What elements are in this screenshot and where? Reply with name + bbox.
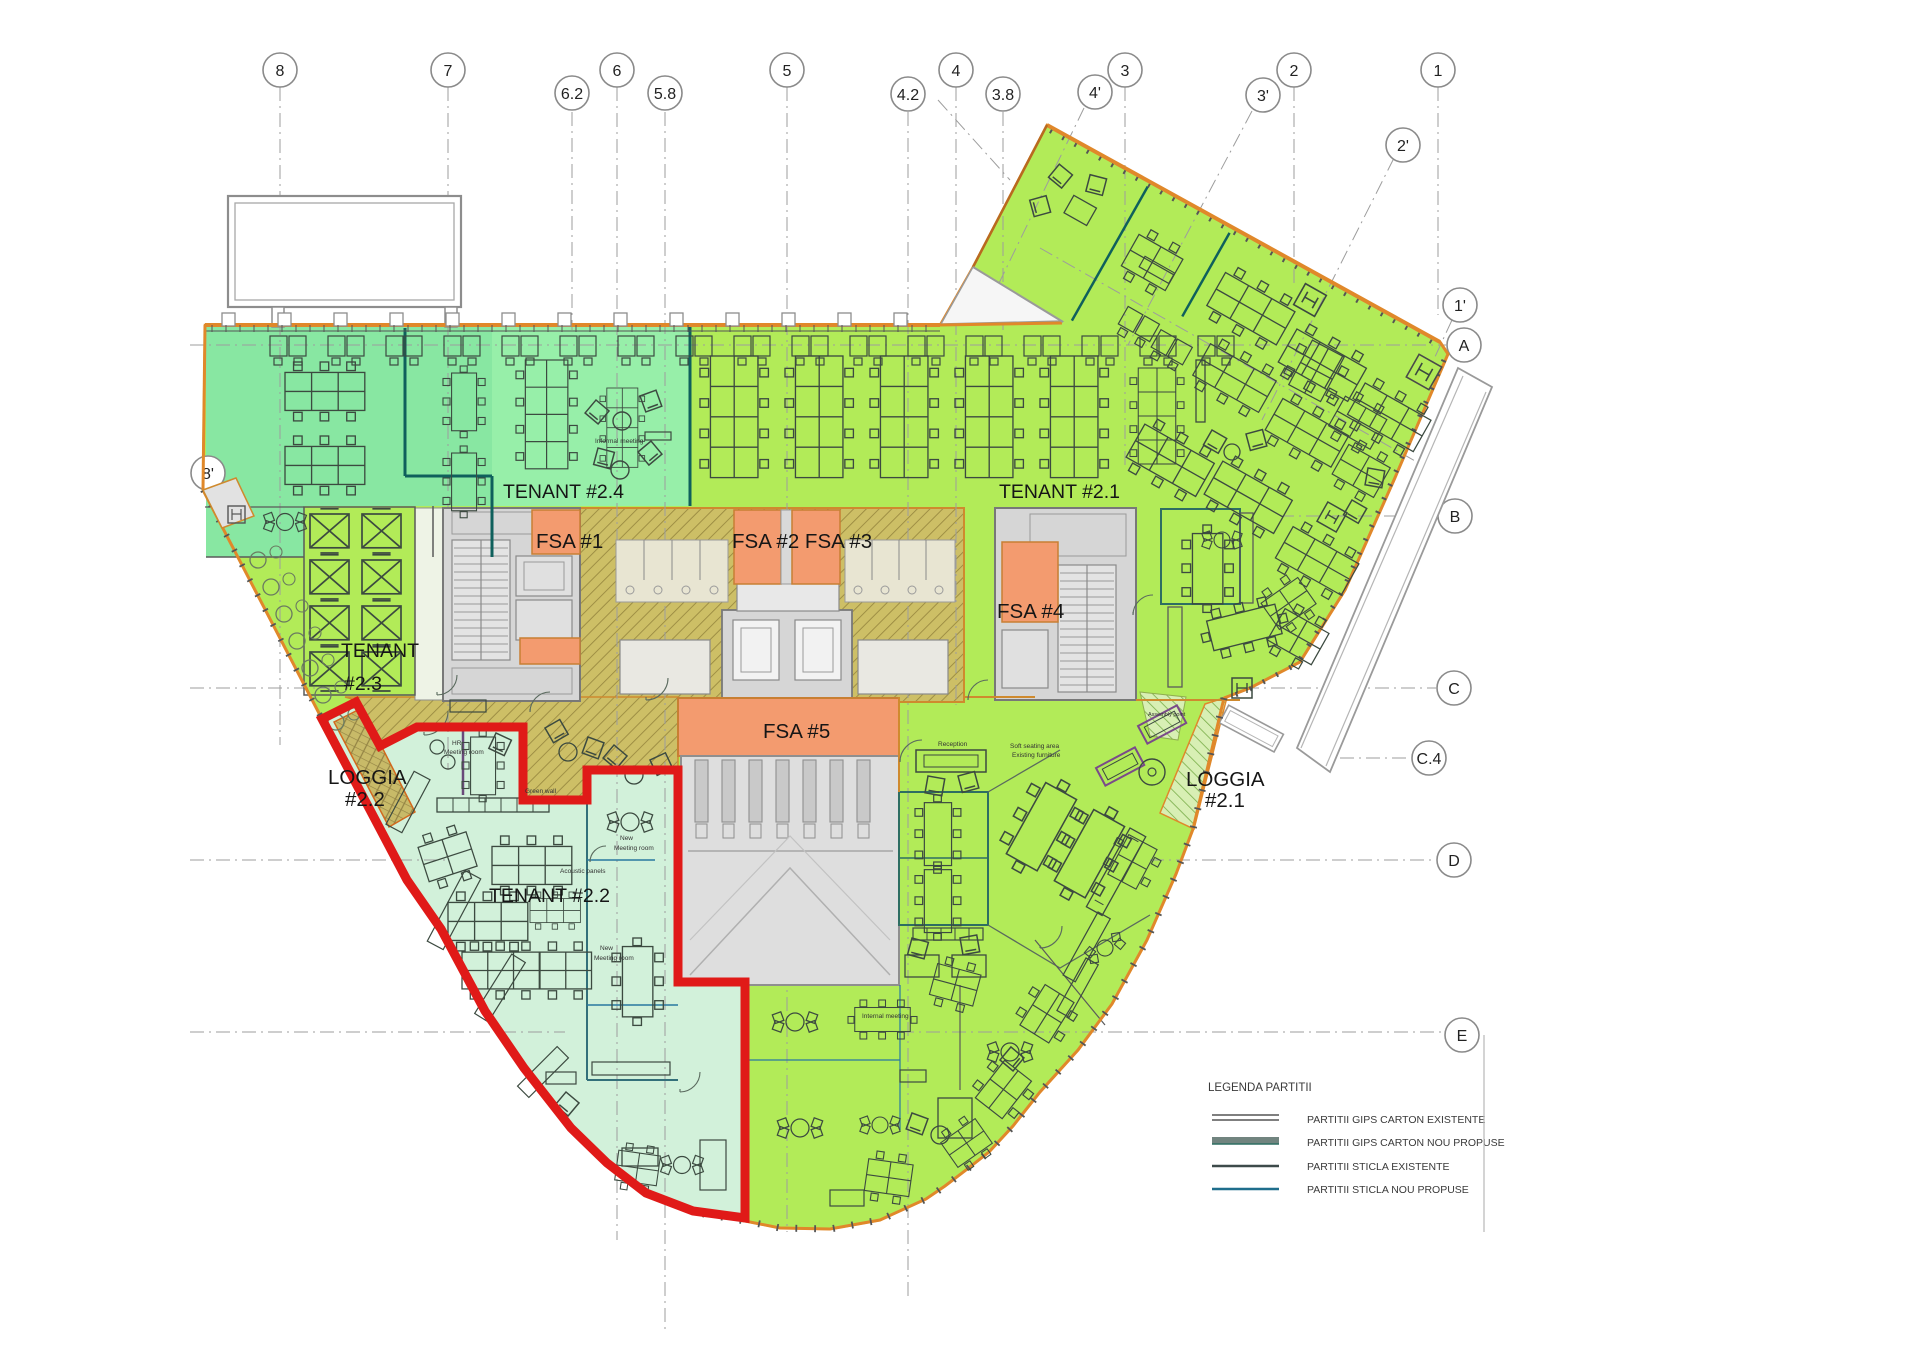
svg-text:Meeting room: Meeting room (614, 845, 654, 852)
svg-text:FSA #1: FSA #1 (536, 530, 603, 553)
svg-text:Meeting room: Meeting room (444, 749, 484, 756)
svg-text:LOGGIA: LOGGIA (1186, 768, 1265, 791)
svg-text:E: E (1457, 1028, 1468, 1045)
svg-text:6: 6 (613, 63, 622, 80)
svg-text:TENANT #2.4: TENANT #2.4 (503, 481, 624, 503)
svg-text:A: A (1459, 338, 1470, 355)
svg-text:3': 3' (1257, 88, 1269, 105)
svg-text:New: New (620, 835, 633, 842)
svg-text:PARTITII GIPS CARTON EXISTENTE: PARTITII GIPS CARTON EXISTENTE (1307, 1114, 1485, 1126)
svg-text:7: 7 (444, 63, 453, 80)
svg-text:#2.3: #2.3 (344, 673, 382, 695)
svg-text:8: 8 (276, 63, 285, 80)
svg-text:TENANT: TENANT (341, 640, 419, 662)
svg-text:D: D (1448, 853, 1460, 870)
svg-text:4: 4 (952, 63, 961, 80)
svg-text:C: C (1448, 681, 1460, 698)
svg-text:5: 5 (783, 63, 792, 80)
svg-text:Internal meeting: Internal meeting (862, 1013, 909, 1020)
svg-text:2: 2 (1290, 63, 1299, 80)
svg-text:Assembly point: Assembly point (1148, 712, 1186, 718)
svg-text:1: 1 (1434, 63, 1443, 80)
svg-text:4': 4' (1089, 85, 1101, 102)
svg-text:PARTITII GIPS CARTON NOU PROPU: PARTITII GIPS CARTON NOU PROPUSE (1307, 1137, 1505, 1149)
svg-text:Acoustic panels: Acoustic panels (560, 868, 606, 875)
svg-text:Green wall: Green wall (525, 788, 557, 795)
svg-text:HR: HR (452, 740, 462, 747)
svg-text:#2.1: #2.1 (1205, 789, 1245, 812)
svg-text:3: 3 (1121, 63, 1130, 80)
svg-text:FSA #2 FSA #3: FSA #2 FSA #3 (732, 530, 872, 553)
svg-text:LEGENDA PARTITII: LEGENDA PARTITII (1208, 1082, 1312, 1094)
svg-text:1': 1' (1454, 298, 1466, 315)
svg-text:Meeting room: Meeting room (594, 955, 634, 962)
svg-text:TENANT #2.1: TENANT #2.1 (999, 481, 1120, 503)
svg-text:Existing furniture: Existing furniture (1012, 752, 1061, 759)
svg-text:5.8: 5.8 (654, 86, 676, 103)
svg-text:New: New (600, 945, 613, 952)
svg-text:B: B (1450, 509, 1461, 526)
svg-text:6.2: 6.2 (561, 86, 583, 103)
svg-text:C.4: C.4 (1417, 751, 1442, 768)
svg-text:LOGGIA: LOGGIA (328, 766, 407, 789)
svg-text:Soft seating area: Soft seating area (1010, 743, 1060, 750)
svg-text:Reception: Reception (938, 741, 968, 748)
svg-text:#2.2: #2.2 (345, 788, 385, 811)
svg-text:3.8: 3.8 (992, 87, 1014, 104)
svg-text:TENANT #2.2: TENANT #2.2 (489, 885, 610, 907)
svg-text:PARTITII STICLA EXISTENTE: PARTITII STICLA EXISTENTE (1307, 1161, 1450, 1173)
svg-text:FSA #5: FSA #5 (763, 720, 830, 743)
svg-text:Informal meeting: Informal meeting (595, 438, 644, 445)
svg-text:2': 2' (1397, 138, 1409, 155)
svg-text:FSA #4: FSA #4 (997, 600, 1064, 623)
svg-text:4.2: 4.2 (897, 87, 919, 104)
svg-text:PARTITII STICLA NOU PROPUSE: PARTITII STICLA NOU PROPUSE (1307, 1184, 1469, 1196)
